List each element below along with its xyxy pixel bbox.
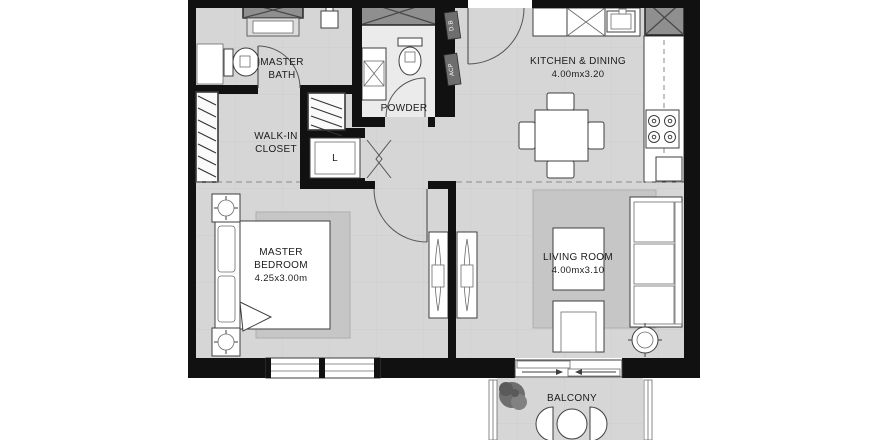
toilet-lid-detail xyxy=(240,56,250,67)
tv-living xyxy=(461,265,473,287)
nightstand-top xyxy=(212,194,240,222)
living-room-dims: 4.00mx3.10 xyxy=(552,265,605,276)
laundry-label: L xyxy=(332,153,338,164)
armchair-seat xyxy=(561,312,596,352)
dining-chair-bottom xyxy=(547,161,574,178)
master-bath-label-line1: MASTER xyxy=(260,57,303,68)
powder-label: POWDER xyxy=(381,103,428,114)
balcony-rail-left xyxy=(489,380,497,440)
powder-toilet-detail xyxy=(405,52,415,62)
shower-mat xyxy=(253,21,293,33)
master-bath-label-line2: BATH xyxy=(268,70,295,81)
sofa-back xyxy=(675,202,682,324)
kitchen-dining-dims: 4.00mx3.20 xyxy=(552,69,605,80)
balcony-sliding-door xyxy=(515,360,622,377)
balcony-table xyxy=(557,409,587,439)
walk-in-closet-label-line2: CLOSET xyxy=(255,144,297,155)
kitchen-sink-basin xyxy=(611,14,631,29)
faucet xyxy=(619,9,626,14)
kitchen-dining-label: KITCHEN & DINING xyxy=(530,56,626,67)
toilet-tank xyxy=(224,49,233,76)
master-bedroom-dims: 4.25x3.00m xyxy=(255,273,308,284)
dining-chair-left xyxy=(519,122,535,149)
dining-table xyxy=(535,110,588,161)
stove xyxy=(646,110,679,148)
sofa-cushion xyxy=(634,244,674,284)
sofa-cushion xyxy=(634,286,674,324)
tv-bedroom xyxy=(432,265,444,287)
master-bedroom-label-line2: BEDROOM xyxy=(254,260,308,271)
master-bedroom-label-line1: MASTER xyxy=(259,247,302,258)
dining-chair-top xyxy=(547,93,574,110)
wash-basin xyxy=(321,11,338,28)
bath-mat xyxy=(197,44,223,84)
balcony-label: BALCONY xyxy=(547,393,597,404)
nightstand-bottom xyxy=(212,328,240,356)
living-room-label: LIVING ROOM xyxy=(543,252,613,263)
pillow xyxy=(218,226,235,272)
balcony-rail-right xyxy=(644,380,652,440)
sofa-cushion xyxy=(634,202,674,242)
kitchen-appliance xyxy=(656,157,682,181)
pillow xyxy=(218,276,235,322)
bedroom-window xyxy=(266,358,380,378)
walk-in-closet-label-line1: WALK-IN xyxy=(254,131,297,142)
floor-plan-drawing: D.B ACP MASTER BATH WALK-IN CLOSET POWDE… xyxy=(0,0,890,440)
floor-plan: D.B ACP MASTER BATH WALK-IN CLOSET POWDE… xyxy=(0,0,890,440)
dining-chair-right xyxy=(588,122,604,149)
powder-toilet-tank xyxy=(398,38,422,46)
